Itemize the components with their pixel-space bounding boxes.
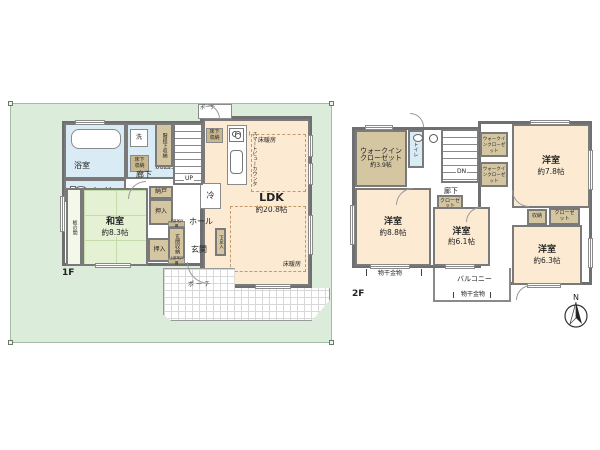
stairs-dn-label: DN <box>456 169 467 175</box>
toilet-label: トイレ <box>413 142 420 157</box>
floor-heating-area-lower: 床暖房 <box>230 206 306 272</box>
entrance-storage-label: 玄関収納 <box>174 229 179 259</box>
entrance-label: 玄関 <box>191 246 207 255</box>
oshiire-label: 押入 <box>155 209 167 215</box>
hall-label: ホール <box>189 218 213 227</box>
upper-cabinet-bottom: 上部吊戸棚 <box>168 258 185 264</box>
shoe-box: 下足入 <box>215 228 226 256</box>
room-wic-main: ウォークイン クローゼット 約3.9帖 <box>355 130 407 187</box>
stairs-up-label: UP <box>184 176 194 182</box>
floor-plan: ポーチ LDK 約20.8帖 床暖房 床暖房 スマートビューカウンター 床下収納… <box>0 0 600 450</box>
window <box>308 215 313 255</box>
washitsu-size: 約8.3帖 <box>100 228 131 237</box>
underfloor-storage-label: 床下収納 <box>209 130 221 141</box>
room-toilet-2f: トイレ <box>408 130 424 168</box>
kitchen-sink-icon <box>230 150 243 174</box>
floor-heating-label: 床暖房 <box>258 138 276 144</box>
fridge-space: 冷 <box>200 183 221 209</box>
drying-tick <box>490 292 491 298</box>
drying-fixture-label: 物干金物 <box>461 292 485 298</box>
room88-size: 約8.8帖 <box>380 228 407 237</box>
storage-label: 収納 <box>532 214 542 219</box>
window <box>527 283 561 288</box>
shoe-box-label: 下足入 <box>218 235 224 249</box>
site-corner-mark <box>329 340 334 345</box>
room-west-88: 洋室 約8.8帖 <box>355 188 431 266</box>
wic-small-label: ウォークインクローゼット <box>482 136 506 154</box>
drying-fixture-left: 物干金物 <box>360 269 426 279</box>
window <box>60 196 65 232</box>
window <box>95 263 131 268</box>
wic-size: 約3.9帖 <box>370 163 392 169</box>
room63-name: 洋室 <box>538 245 556 256</box>
room-west-61: 洋室 約6.1帖 <box>433 207 490 266</box>
itanoma: 板の間 <box>66 188 82 266</box>
wic-small-label: ウォークインクローゼット <box>482 166 506 184</box>
wic-small-2: ウォークインクローゼット <box>480 162 508 187</box>
drying-tick <box>453 292 454 298</box>
washitsu-name: 和室 <box>104 217 126 228</box>
floor1-label: 1F <box>62 268 74 278</box>
storage-2f: 収納 <box>527 209 547 225</box>
corridor-label-1f: 廊下 <box>136 171 152 180</box>
site-corner-mark <box>8 340 13 345</box>
window <box>530 120 570 125</box>
window <box>370 264 410 269</box>
bath-label: 浴室 <box>74 162 90 171</box>
room78-size: 約7.8帖 <box>538 167 565 176</box>
itanoma-label: 板の間 <box>71 212 76 242</box>
vanity-icon <box>429 134 438 143</box>
compass-n-label: N <box>573 293 579 302</box>
underfloor-storage-kitchen: 床下収納 <box>206 128 223 143</box>
window <box>75 120 105 125</box>
room61-name: 洋室 <box>452 227 470 238</box>
door-arc <box>410 113 424 127</box>
oshiire-label: 押入 <box>153 247 165 253</box>
stairs-2f: DN <box>441 129 479 183</box>
floor2-label: 2F <box>352 289 364 299</box>
stove-icon <box>229 128 244 142</box>
drying-fixture-label: 物干金物 <box>378 271 402 277</box>
wic-small-1: ウォークインクローゼット <box>480 132 508 157</box>
stair-storage-label: 階段下収納 <box>161 125 166 165</box>
door-arc <box>516 285 531 300</box>
washer-label: 洗 <box>136 135 142 141</box>
room-west-63: 洋室 約6.3帖 <box>512 225 582 285</box>
fridge-label: 冷 <box>207 192 215 201</box>
compass: N <box>561 291 591 331</box>
smart-view-counter-label: スマートビューカウンター <box>246 131 257 189</box>
window <box>588 238 593 268</box>
room63-size: 約6.3帖 <box>534 256 561 265</box>
window <box>308 135 313 157</box>
underfloor-storage-label: 床下収納 <box>134 158 146 169</box>
drying-tick <box>366 269 367 276</box>
storeroom: 納戸 <box>149 186 173 199</box>
window <box>350 205 355 245</box>
storeroom-label: 納戸 <box>155 189 167 195</box>
window <box>588 150 593 190</box>
closet-label: クローゼット <box>553 211 577 222</box>
closet-right: クローゼット <box>549 208 580 225</box>
stairs-1f: UP <box>173 123 203 185</box>
room-washitsu: 和室 約8.3帖 <box>82 188 148 266</box>
drying-tick <box>421 269 422 276</box>
washer-space: 洗 <box>130 129 148 147</box>
room-bath: 浴室 <box>64 123 126 179</box>
room88-name: 洋室 <box>384 217 402 228</box>
balcony-label: バルコニー <box>457 276 492 283</box>
toilet-icon <box>413 134 423 142</box>
room78-name: 洋室 <box>542 156 560 167</box>
window <box>255 284 291 289</box>
bathtub-icon <box>71 129 121 149</box>
stair-storage: 階段下収納 <box>155 123 173 167</box>
window <box>365 125 393 130</box>
balcony: バルコニー 物干金物 <box>433 268 511 302</box>
site-corner-mark <box>8 101 13 106</box>
floor-heating-label: 床暖房 <box>283 262 301 268</box>
upper-cabinet-label: 上部吊戸棚 <box>169 256 184 266</box>
window <box>445 264 475 269</box>
ldk-name: LDK <box>259 191 284 204</box>
site-corner-mark <box>329 101 334 106</box>
floor-heating-area-upper: 床暖房 <box>251 134 306 192</box>
room61-size: 約6.1帖 <box>448 237 475 246</box>
window <box>308 163 313 185</box>
